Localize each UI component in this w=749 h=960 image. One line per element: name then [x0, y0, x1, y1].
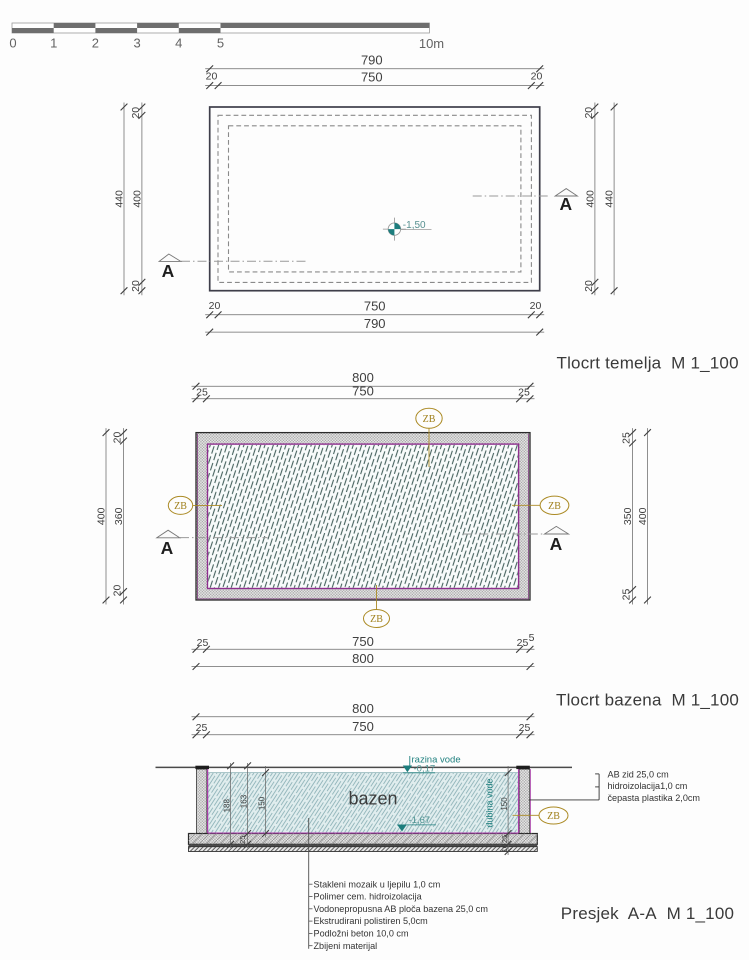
svg-text:A: A [559, 194, 572, 214]
svg-text:5: 5 [529, 632, 535, 644]
svg-text:750: 750 [352, 719, 374, 734]
svg-text:400: 400 [96, 507, 108, 525]
svg-text:750: 750 [361, 70, 383, 85]
svg-text:750: 750 [364, 299, 386, 314]
svg-text:20: 20 [112, 432, 124, 444]
svg-text:Podložni beton 10,0 cm: Podložni beton 10,0 cm [314, 929, 409, 939]
svg-text:bazen: bazen [349, 789, 398, 809]
svg-text:ZB: ZB [547, 811, 560, 822]
svg-text:440: 440 [604, 190, 616, 208]
svg-text:Vodonepropusna AB ploča bazena: Vodonepropusna AB ploča bazena 25,0 cm [314, 904, 488, 914]
svg-text:188: 188 [223, 798, 232, 812]
svg-text:440: 440 [114, 190, 126, 208]
svg-text:150: 150 [500, 797, 509, 811]
svg-text:20: 20 [530, 300, 542, 312]
svg-text:ZB: ZB [370, 614, 383, 625]
svg-text:790: 790 [364, 316, 386, 331]
svg-text:Tlocrt temelja M 1_100: Tlocrt temelja M 1_100 [557, 354, 739, 373]
svg-text:750: 750 [352, 383, 374, 398]
svg-text:2: 2 [92, 36, 99, 51]
svg-text:25: 25 [196, 386, 208, 398]
svg-text:AB zid 25,0 cm: AB zid 25,0 cm [608, 769, 669, 779]
svg-text:dubina vode: dubina vode [484, 778, 494, 827]
svg-text:ZB: ZB [423, 414, 436, 425]
svg-text:360: 360 [113, 507, 125, 525]
svg-text:20: 20 [583, 280, 595, 292]
svg-text:5: 5 [217, 36, 224, 51]
svg-text:800: 800 [352, 701, 374, 716]
svg-text:1: 1 [50, 36, 57, 51]
svg-text:Ekstrudirani polistiren 5,0cm: Ekstrudirani polistiren 5,0cm [314, 916, 428, 926]
svg-text:Presjek A-A M 1_100: Presjek A-A M 1_100 [561, 904, 734, 923]
svg-text:25: 25 [517, 637, 529, 649]
svg-text:350: 350 [622, 507, 634, 525]
svg-text:163: 163 [240, 794, 249, 808]
svg-text:20: 20 [130, 107, 142, 119]
svg-text:Stakleni mozaik u ljepilu 1,0: Stakleni mozaik u ljepilu 1,0 cm [314, 879, 441, 889]
svg-text:150: 150 [257, 796, 266, 810]
svg-text:25: 25 [500, 835, 509, 843]
svg-text:A: A [161, 538, 174, 558]
svg-text:750: 750 [352, 634, 374, 649]
svg-text:-0,17: -0,17 [414, 763, 436, 774]
svg-text:25: 25 [621, 432, 633, 444]
svg-text:10m: 10m [419, 36, 444, 51]
svg-text:Polimer cem. hidroizolacija: Polimer cem. hidroizolacija [314, 892, 423, 902]
svg-text:hidroizolacija1,0 cm: hidroizolacija1,0 cm [608, 781, 688, 791]
svg-text:20: 20 [112, 585, 124, 597]
svg-text:790: 790 [361, 53, 383, 68]
svg-text:20: 20 [531, 71, 543, 83]
svg-text:400: 400 [584, 190, 596, 208]
svg-text:4: 4 [175, 36, 182, 51]
svg-text:25: 25 [196, 722, 208, 734]
svg-text:20: 20 [209, 300, 221, 312]
svg-text:400: 400 [131, 190, 143, 208]
svg-text:Tlocrt bazena M 1_100: Tlocrt bazena M 1_100 [556, 691, 739, 710]
svg-text:3: 3 [133, 36, 140, 51]
svg-text:A: A [162, 261, 175, 281]
svg-text:25: 25 [518, 386, 530, 398]
svg-text:Zbijeni materijal: Zbijeni materijal [314, 941, 378, 951]
svg-text:A: A [550, 534, 563, 554]
svg-text:25: 25 [238, 836, 247, 844]
svg-text:800: 800 [352, 651, 374, 666]
svg-text:400: 400 [637, 507, 649, 525]
svg-text:20: 20 [583, 107, 595, 119]
svg-text:0: 0 [9, 36, 16, 51]
svg-text:25: 25 [197, 637, 209, 649]
svg-text:ZB: ZB [548, 501, 561, 512]
svg-text:25: 25 [621, 589, 633, 601]
svg-text:25: 25 [519, 722, 531, 734]
svg-text:čepasta plastika 2,0cm: čepasta plastika 2,0cm [608, 793, 701, 803]
svg-text:-1,50: -1,50 [403, 220, 426, 231]
svg-text:20: 20 [130, 280, 142, 292]
svg-text:20: 20 [206, 71, 218, 83]
svg-text:ZB: ZB [174, 501, 187, 512]
svg-text:10: 10 [500, 844, 509, 852]
